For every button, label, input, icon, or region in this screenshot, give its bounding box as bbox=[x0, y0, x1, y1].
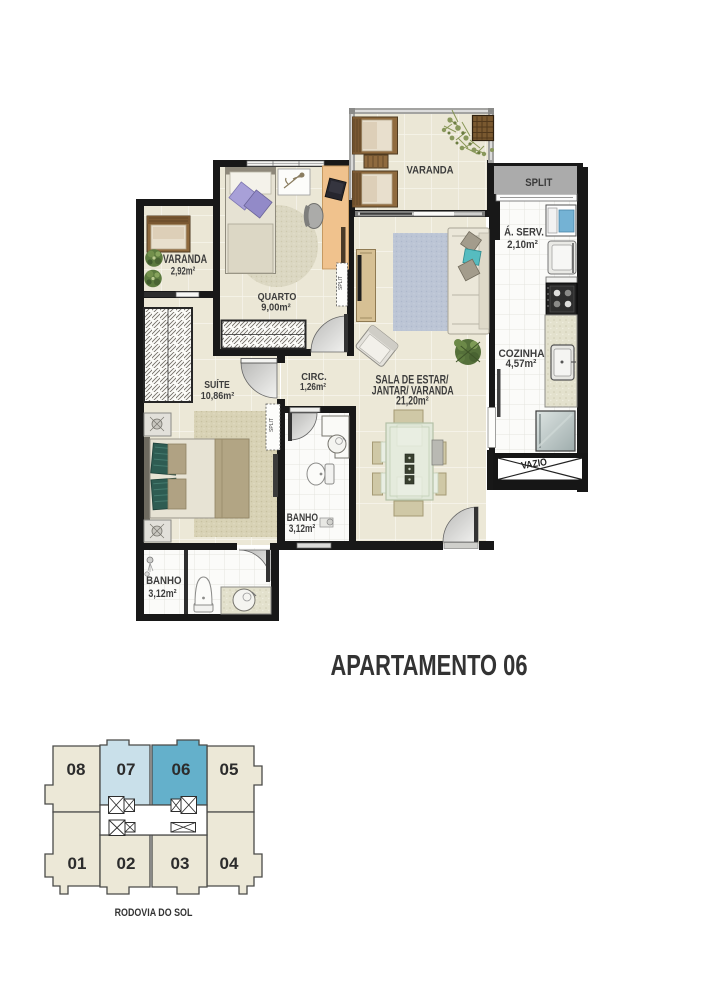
svg-text:APARTAMENTO 06: APARTAMENTO 06 bbox=[330, 650, 527, 682]
svg-text:05: 05 bbox=[220, 760, 239, 779]
svg-text:02: 02 bbox=[117, 854, 136, 873]
svg-text:21,20m²: 21,20m² bbox=[396, 395, 429, 407]
svg-text:06: 06 bbox=[172, 760, 191, 779]
svg-text:01: 01 bbox=[68, 854, 87, 873]
svg-text:2,10m²: 2,10m² bbox=[507, 240, 538, 252]
svg-text:07: 07 bbox=[117, 760, 136, 779]
svg-text:10,86m²: 10,86m² bbox=[201, 391, 234, 403]
svg-text:VARANDA: VARANDA bbox=[406, 165, 454, 177]
svg-text:SPLIT: SPLIT bbox=[269, 418, 275, 432]
svg-text:SPLIT: SPLIT bbox=[525, 177, 553, 189]
svg-text:Á. SERV.: Á. SERV. bbox=[504, 225, 544, 239]
svg-text:SPLIT: SPLIT bbox=[338, 276, 344, 290]
svg-text:3,12m²: 3,12m² bbox=[289, 523, 316, 535]
svg-text:BANHO: BANHO bbox=[146, 576, 181, 588]
svg-text:08: 08 bbox=[67, 760, 86, 779]
svg-text:03: 03 bbox=[171, 854, 190, 873]
svg-text:4,57m²: 4,57m² bbox=[506, 359, 537, 371]
svg-text:04: 04 bbox=[220, 854, 239, 873]
svg-text:RODOVIA DO SOL: RODOVIA DO SOL bbox=[115, 907, 193, 919]
svg-text:SUÍTE: SUÍTE bbox=[204, 378, 230, 390]
svg-text:3,12m²: 3,12m² bbox=[148, 588, 177, 600]
svg-text:2,92m²: 2,92m² bbox=[171, 265, 195, 278]
svg-text:9,00m²: 9,00m² bbox=[261, 302, 291, 313]
svg-text:1,26m²: 1,26m² bbox=[300, 381, 326, 392]
